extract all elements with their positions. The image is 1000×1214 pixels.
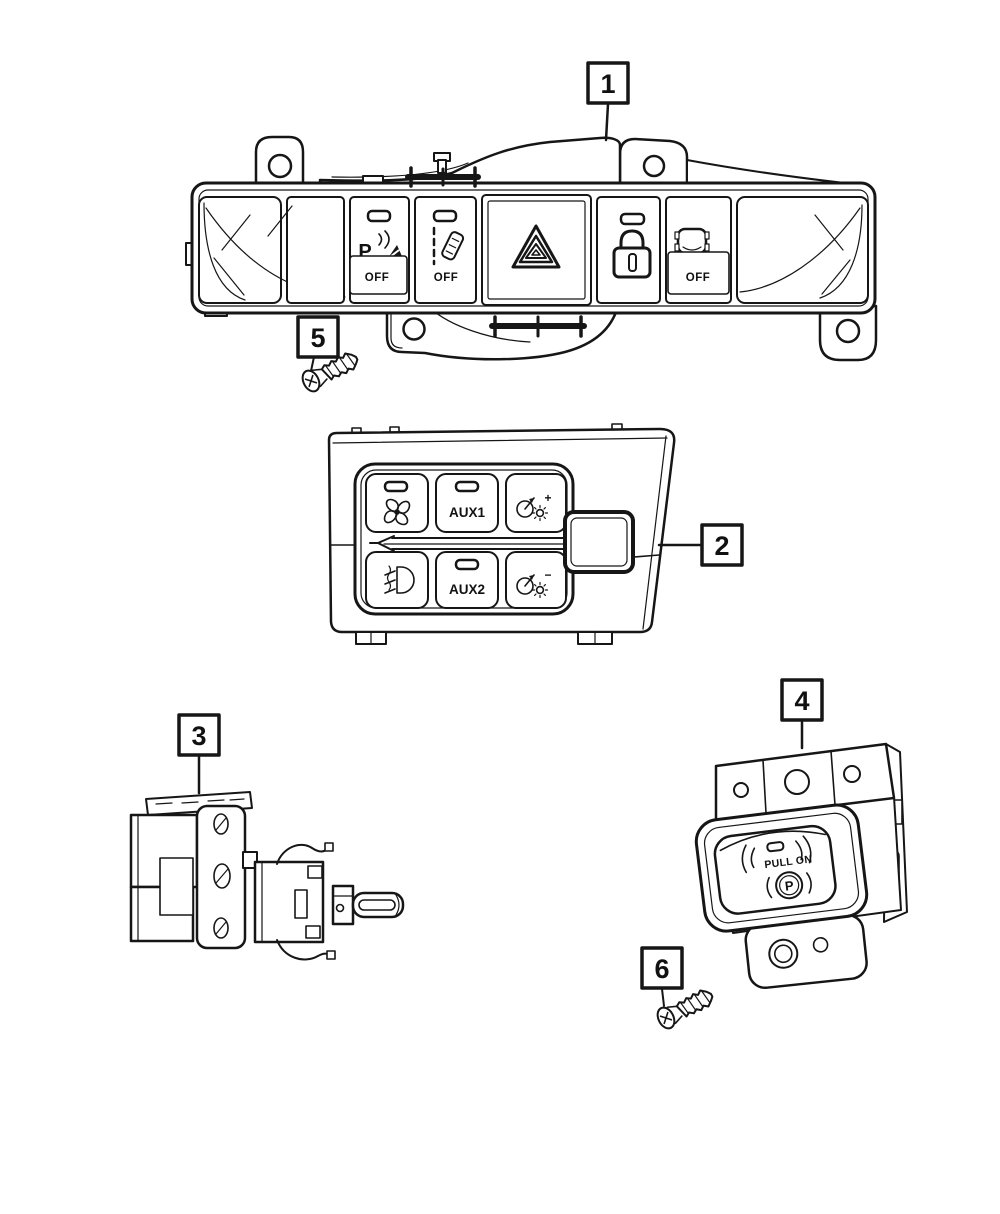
svg-text:AUX1: AUX1	[449, 505, 486, 520]
aux2-button: AUX2	[436, 552, 498, 608]
indicator-pill	[767, 842, 784, 852]
svg-text:4[interactable]: 4	[794, 686, 809, 716]
fog-lamp-button	[366, 552, 428, 608]
panel-end-lens-right	[737, 197, 868, 303]
bracket-hole	[404, 319, 425, 340]
aux1-button: AUX1	[436, 474, 498, 532]
indicator-pill	[434, 211, 456, 221]
pod-connector	[565, 512, 633, 572]
parts-diagram: P OFF OFF	[0, 0, 1000, 1214]
park-assist-off-button: P OFF	[350, 197, 409, 303]
svg-text:OFF: OFF	[686, 272, 711, 284]
bracket-hole	[837, 320, 859, 342]
stability-control-off-button: OFF	[666, 197, 731, 303]
svg-text:OFF: OFF	[365, 272, 390, 284]
parts-diagram-canvas: P OFF OFF	[0, 0, 1000, 1214]
park-brake-rocker	[713, 824, 838, 916]
hazard-flasher-button	[482, 195, 591, 305]
svg-text:2[interactable]: 2	[714, 531, 729, 561]
svg-text:3[interactable]: 3	[191, 721, 206, 751]
indicator-pill	[368, 211, 390, 221]
bracket-hole	[734, 783, 748, 797]
indicator-pill	[621, 214, 644, 224]
svg-text:6[interactable]: 6	[654, 954, 669, 984]
lane-departure-off-button: OFF	[415, 197, 476, 303]
dimmer-up-button: +	[506, 474, 566, 532]
pod-divider-bar	[370, 536, 566, 551]
bracket-hole	[844, 766, 860, 782]
svg-text:1[interactable]: 1	[600, 69, 615, 99]
svg-text:−: −	[544, 568, 551, 582]
bracket-hole	[644, 156, 664, 176]
fan-button	[366, 474, 428, 532]
bracket-hole	[269, 155, 291, 177]
switch-pod-assembly: AUX1 +	[329, 424, 674, 644]
indicator-pill	[456, 560, 478, 569]
indicator-pill	[456, 482, 478, 491]
svg-text:AUX2: AUX2	[449, 582, 485, 597]
park-brake-bezel: PULL ON P	[694, 803, 869, 934]
indicator-pill	[385, 482, 407, 491]
svg-text:OFF: OFF	[434, 272, 459, 284]
dimmer-down-button: −	[506, 552, 566, 608]
svg-text:5[interactable]: 5	[310, 323, 325, 353]
svg-text:+: +	[544, 491, 551, 505]
bracket-hole	[785, 770, 809, 794]
door-lock-button	[597, 197, 660, 303]
